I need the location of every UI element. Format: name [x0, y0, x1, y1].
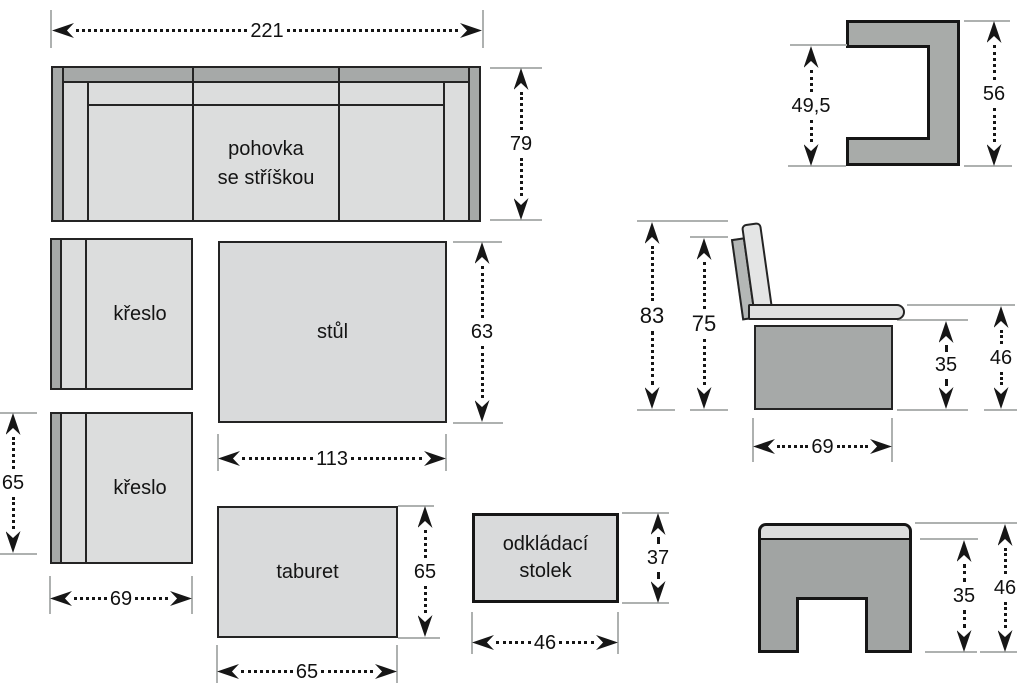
sofa-left-armrest: [64, 83, 89, 220]
arrow-up-icon: [998, 524, 1013, 546]
sofa-label-line2: se stříškou: [218, 164, 315, 193]
extension-line: [897, 409, 968, 411]
arrow-up-icon: [6, 413, 21, 435]
arrow-up-icon: [957, 540, 972, 562]
dim-value: 35: [934, 353, 958, 377]
armchair-top-view: křeslo: [50, 238, 193, 390]
arrow-right-icon: [870, 439, 892, 454]
armchair-back-cushion: [62, 414, 87, 562]
dimension-line: [703, 262, 706, 309]
arrow-right-icon: [460, 23, 482, 38]
arrow-left-icon: [472, 635, 494, 650]
sidetable-topview: odkládací stolek: [472, 513, 619, 603]
arrow-down-icon: [939, 387, 954, 409]
dim-value: 46: [533, 631, 557, 655]
dimension-line: [351, 457, 422, 460]
arrow-down-icon: [697, 387, 712, 409]
dim-bench-total-height: 83: [638, 222, 666, 409]
bench-seat-cushion: [748, 304, 905, 320]
arrow-up-icon: [987, 21, 1002, 43]
arrow-up-icon: [939, 321, 954, 343]
arrow-left-icon: [217, 664, 239, 679]
sofa-seat-divider: [338, 68, 340, 220]
sidetable-label-line1: odkládací: [503, 531, 589, 558]
dim-armchair-width: 69: [50, 587, 192, 610]
arrow-down-icon: [514, 198, 529, 220]
arrow-down-icon: [418, 615, 433, 637]
dimension-line: [481, 266, 484, 318]
sofa-label-block: pohovka se stříškou: [194, 110, 338, 218]
dim-stool-total-height: 46: [991, 524, 1019, 652]
dim-value: 49,5: [791, 94, 832, 118]
dim-value: 113: [315, 447, 349, 471]
table-topview: stůl: [218, 241, 447, 423]
arrow-up-icon: [994, 306, 1009, 328]
dimension-line: [703, 339, 706, 386]
armchair-label: křeslo: [113, 474, 166, 503]
dimension-line: [945, 379, 948, 385]
extension-line: [453, 422, 503, 424]
arrow-down-icon: [957, 630, 972, 652]
sofa-right-edge: [468, 68, 479, 220]
dim-armchair-depth: 65: [0, 413, 26, 553]
dimension-line: [496, 641, 531, 644]
arrow-up-icon: [645, 222, 660, 244]
bench-base: [754, 325, 893, 410]
dimension-line: [12, 437, 15, 469]
dimension-line: [242, 457, 313, 460]
armchair-back-cushion: [62, 240, 87, 388]
dim-value: 79: [509, 132, 533, 156]
arrow-down-icon: [651, 581, 666, 603]
dimension-line: [963, 564, 966, 582]
dimension-line: [424, 586, 427, 614]
dimension-line: [135, 597, 168, 600]
dim-value: 65: [1, 471, 25, 495]
arrow-down-icon: [475, 400, 490, 422]
dimension-line: [810, 120, 813, 142]
dim-value: 37: [646, 546, 670, 570]
dim-value: 65: [413, 560, 437, 584]
dimension-line: [810, 70, 813, 92]
dim-sidetable-depth: 37: [644, 513, 672, 603]
dim-table-width: 113: [218, 447, 446, 470]
table-label: stůl: [317, 318, 348, 347]
extension-line: [398, 637, 440, 639]
arrow-right-icon: [424, 451, 446, 466]
extension-line: [637, 409, 675, 411]
sofa-backrest-band: [64, 68, 468, 83]
dim-tabouret-depth: 65: [412, 506, 438, 637]
dim-value: 69: [810, 435, 834, 459]
arrow-left-icon: [218, 451, 240, 466]
sofa-label-line1: pohovka: [218, 135, 315, 164]
dim-canopy-outer-height: 56: [980, 21, 1008, 166]
tabouret-topview: taburet: [217, 506, 398, 638]
armchair-back-edge: [52, 414, 62, 562]
stool-leg-opening: [796, 597, 868, 653]
dimension-line: [76, 29, 247, 32]
sidetable-label: odkládací stolek: [503, 531, 589, 585]
dim-value: 63: [470, 320, 494, 344]
dimension-line: [651, 246, 654, 301]
dim-bench-backrest-height: 75: [690, 238, 718, 409]
dimension-line: [520, 158, 523, 196]
sofa-right-armrest: [443, 83, 468, 220]
dimension-line: [481, 346, 484, 398]
stool-cushion: [761, 526, 909, 540]
dimension-line: [287, 29, 458, 32]
extension-line: [0, 553, 37, 555]
dim-value: 56: [982, 82, 1006, 106]
dimension-line: [651, 331, 654, 386]
sofa-topview: pohovka se stříškou: [51, 66, 481, 222]
dim-value: 83: [639, 303, 665, 329]
dimension-line: [12, 497, 15, 529]
dim-value: 35: [952, 584, 976, 608]
dimension-line: [520, 92, 523, 130]
arrow-left-icon: [50, 591, 72, 606]
arrow-down-icon: [994, 387, 1009, 409]
arrow-up-icon: [418, 506, 433, 528]
dimension-line: [993, 108, 996, 143]
dimension-line: [1004, 602, 1007, 628]
extension-line: [690, 409, 728, 411]
furniture-dimension-diagram: 221 pohovka se stříškou 79 kř: [0, 0, 1020, 686]
dimension-line: [321, 670, 373, 673]
dimension-line: [657, 537, 660, 544]
dim-bench-depth: 69: [753, 435, 892, 458]
arrow-up-icon: [697, 238, 712, 260]
arrow-up-icon: [475, 242, 490, 264]
extension-line: [482, 10, 484, 48]
canopy-profile: [846, 20, 960, 166]
arrow-down-icon: [987, 144, 1002, 166]
dimension-line: [241, 670, 293, 673]
arrow-left-icon: [753, 439, 775, 454]
canopy-opening: [846, 45, 930, 140]
dimension-line: [963, 610, 966, 628]
sidetable-label-line2: stolek: [503, 558, 589, 585]
dim-value: 69: [109, 587, 133, 611]
dimension-line: [1000, 330, 1003, 344]
dimension-line: [777, 445, 808, 448]
dimension-line: [837, 445, 868, 448]
sofa-label: pohovka se stříškou: [218, 135, 315, 193]
dim-table-depth: 63: [469, 242, 495, 422]
tabouret-label: taburet: [276, 558, 338, 587]
sofa-left-edge: [53, 68, 64, 220]
dim-tabouret-width: 65: [217, 660, 397, 683]
dim-value: 46: [989, 346, 1013, 370]
dim-sofa-width: 221: [52, 19, 482, 42]
arrow-up-icon: [514, 68, 529, 90]
extension-line: [984, 409, 1017, 411]
armchair-back-edge: [52, 240, 62, 388]
dim-bench-base-height: 35: [932, 321, 960, 409]
arrow-right-icon: [170, 591, 192, 606]
dim-canopy-inner-height: 49,5: [796, 46, 826, 166]
dimension-line: [657, 572, 660, 579]
dimension-line: [1000, 372, 1003, 386]
dim-value: 75: [691, 311, 717, 337]
armchair-bottom-view: křeslo: [50, 412, 193, 564]
arrow-up-icon: [804, 46, 819, 68]
arrow-down-icon: [645, 387, 660, 409]
dimension-line: [1004, 548, 1007, 574]
dimension-line: [74, 597, 107, 600]
dim-value: 65: [295, 660, 319, 684]
arrow-down-icon: [6, 531, 21, 553]
dim-sofa-depth: 79: [508, 68, 534, 220]
dim-stool-base-height: 35: [950, 540, 978, 652]
dimension-line: [559, 641, 594, 644]
dim-sidetable-width: 46: [472, 631, 618, 654]
arrow-right-icon: [375, 664, 397, 679]
armchair-label-block: křeslo: [89, 240, 191, 388]
armchair-label-block: křeslo: [89, 414, 191, 562]
arrow-right-icon: [596, 635, 618, 650]
dim-value: 46: [993, 576, 1017, 600]
armchair-label: křeslo: [113, 300, 166, 329]
dimension-line: [945, 345, 948, 351]
arrow-up-icon: [651, 513, 666, 535]
dim-value: 221: [249, 19, 284, 43]
sofa-back-cushions: [89, 83, 443, 106]
dimension-line: [424, 530, 427, 558]
dimension-line: [993, 45, 996, 80]
arrow-left-icon: [52, 23, 74, 38]
arrow-down-icon: [998, 630, 1013, 652]
dim-bench-seat-height: 46: [987, 306, 1015, 409]
arrow-down-icon: [804, 144, 819, 166]
